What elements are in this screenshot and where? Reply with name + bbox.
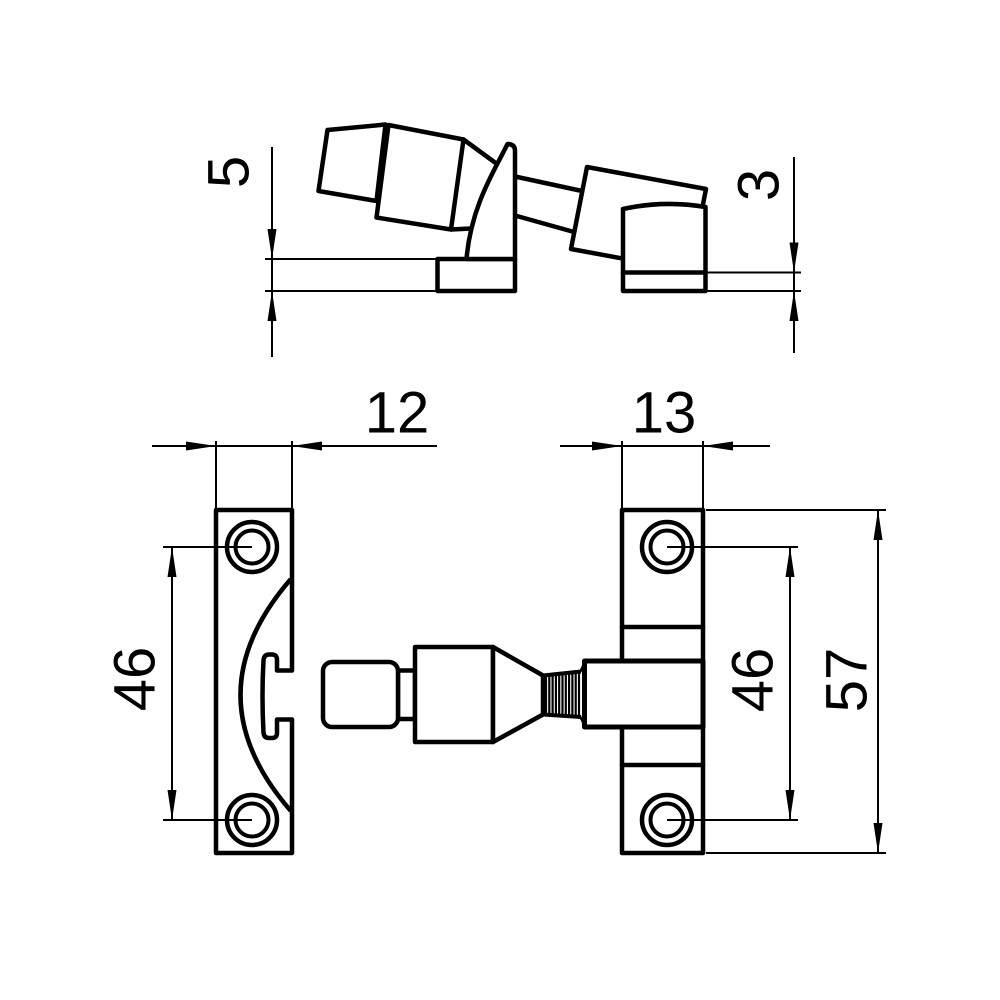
knob-cone-top-edge	[464, 140, 498, 165]
latch-plate-front	[216, 510, 292, 853]
dim-label-keep-height: 3	[727, 169, 792, 201]
dim-label-latch-width: 12	[365, 381, 430, 446]
dimension-3: 3	[706, 157, 802, 353]
knob-cone	[493, 647, 543, 742]
knob-neck	[398, 671, 415, 720]
technical-drawing: 5 3	[0, 0, 1000, 1000]
knob-cone-bottom-edge	[451, 229, 471, 230]
side-view: 5 3	[197, 125, 802, 358]
dim-label-latch-hole-spacing: 46	[103, 647, 168, 712]
arrow-right-icon	[592, 442, 622, 451]
arrow-down-icon	[168, 790, 177, 820]
arrow-down-icon	[874, 823, 883, 853]
knob-body-side	[377, 125, 464, 230]
knob-body	[415, 647, 493, 742]
keep-block-side	[623, 204, 706, 291]
knob-assembly-front	[323, 647, 703, 742]
arrow-left-icon	[703, 442, 733, 451]
arrow-up-icon	[790, 291, 799, 321]
front-view: 12 13 46 46	[103, 381, 887, 854]
dim-label-keep-overall-height: 57	[815, 648, 880, 713]
arrow-down-icon	[786, 790, 795, 820]
drawing-canvas: 5 3	[0, 0, 1000, 1000]
arrow-down-icon	[790, 243, 799, 273]
knob-end	[323, 662, 398, 727]
dimension-12: 12	[152, 381, 437, 509]
dim-label-keep-hole-spacing: 46	[721, 648, 786, 713]
arrow-up-icon	[874, 510, 883, 540]
dimension-13: 13	[560, 381, 770, 509]
thread-hatching	[546, 672, 579, 717]
arrow-up-icon	[268, 291, 277, 321]
arrow-up-icon	[786, 547, 795, 577]
arm-bottom-edge	[515, 216, 574, 233]
base-plate-side	[438, 259, 516, 291]
knob-end-side	[319, 125, 386, 202]
spindle-thread	[543, 661, 585, 727]
arrow-up-icon	[168, 547, 177, 577]
arrow-left-icon	[292, 442, 322, 451]
arrow-right-icon	[186, 442, 216, 451]
dim-label-base-height: 5	[197, 156, 262, 188]
arrow-down-icon	[268, 229, 277, 259]
dim-label-keep-width: 13	[632, 381, 697, 446]
arm-top-edge	[515, 177, 582, 192]
spindle-block	[585, 661, 704, 727]
